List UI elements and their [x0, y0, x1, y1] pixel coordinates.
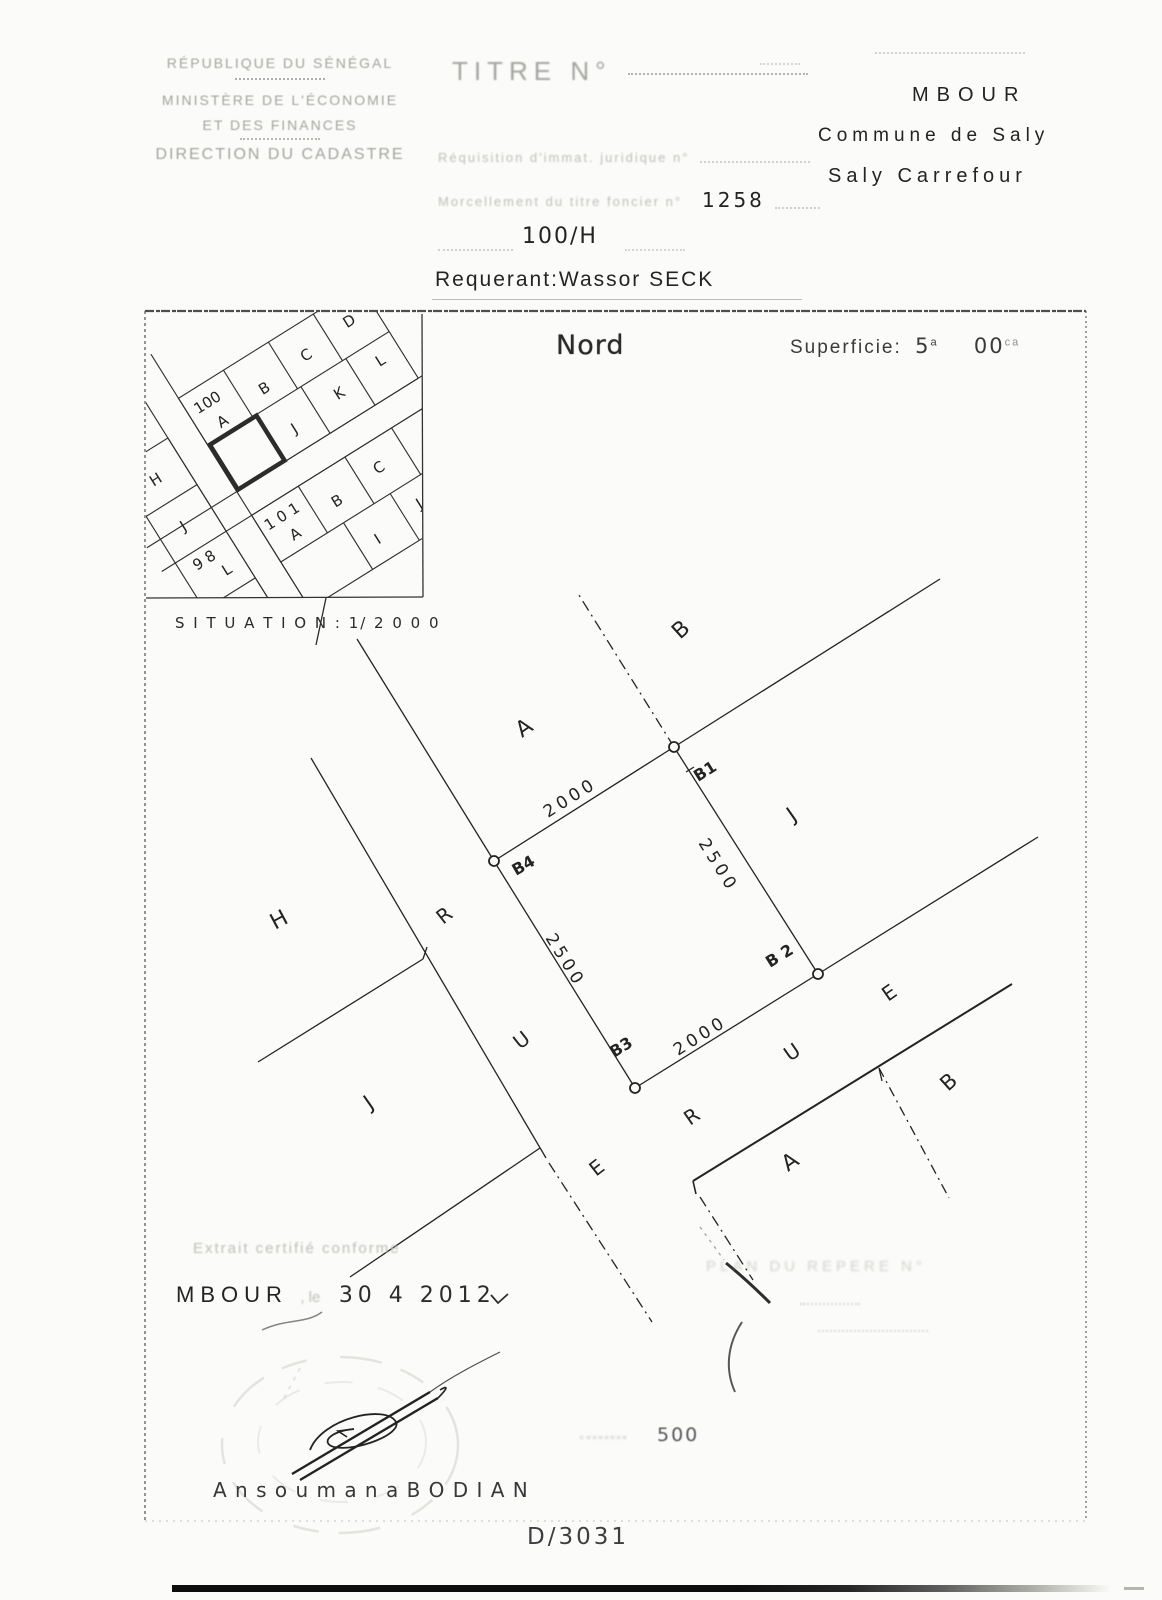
inset-parcel-h98: H: [146, 469, 165, 490]
footer-le: , le: [300, 1289, 320, 1306]
street-bottom-letter-r: R: [679, 1102, 704, 1130]
faint-mark-1: [800, 1303, 860, 1305]
corner-label-b3: B3: [606, 1033, 636, 1061]
inset-parcel-d100: D: [340, 310, 359, 331]
dimension-bottom: 2000: [670, 1012, 731, 1060]
corner-label-b4: B4: [509, 851, 539, 879]
signer-name: A n s o u m a n a B O D I A N: [213, 1478, 529, 1502]
inset-parcel-c101: C: [370, 457, 388, 478]
dimension-left: 2500: [541, 930, 589, 991]
parcel-label-h-left: H: [266, 905, 292, 935]
inset-parcel-b101: B: [328, 490, 346, 511]
parcel-label-b-bottom: B: [935, 1068, 962, 1095]
footer-place: MBOUR: [176, 1282, 288, 1307]
street-left-letter-e: E: [584, 1154, 609, 1181]
doc-number: D/3031: [527, 1524, 629, 1550]
inset-parcel-b100: B: [255, 378, 273, 399]
inset-parcel-a100: A: [213, 411, 232, 432]
inset-caption: S I T U A T I O N : 1/ 2 0 0 0: [175, 614, 441, 632]
street-left-letter-r: R: [431, 901, 457, 929]
place-date-line: MBOUR , le 30 4 2012: [176, 1282, 496, 1308]
inset-parcel-i101: I: [371, 530, 384, 548]
inset-parcel-a101: A: [286, 523, 305, 544]
scan-strip: [172, 1585, 1112, 1592]
inset-parcel-l100: L: [372, 350, 389, 370]
faint-mark-2: [818, 1330, 928, 1332]
inset-parcel-j100: J: [287, 420, 301, 438]
stray-marks: [491, 1227, 770, 1392]
faint-plan-note: PLAN DU REPERE N°: [706, 1258, 926, 1275]
parcel-label-j-left: J: [357, 1091, 377, 1115]
scale-smudge: [580, 1436, 626, 1439]
inset-parcel-k100: K: [330, 383, 349, 404]
signature: [262, 1312, 500, 1480]
plan-drawing: 100 A B C D J K L H J 9 8 L K 1 0 1 A B …: [0, 0, 1162, 1600]
inset-parcel-l98: L: [219, 560, 236, 580]
dimension-top: 2000: [540, 774, 601, 822]
parcel-label-a-bottom: A: [777, 1148, 804, 1177]
scan-strip-fragment: [1124, 1587, 1144, 1590]
footer-date: 30 4 2012: [339, 1283, 496, 1308]
corner-label-b1: B1: [690, 757, 720, 785]
dimension-right: 2500: [694, 835, 742, 896]
corner-label-b2: B 2: [762, 940, 797, 971]
parcel-label-a-top: A: [511, 714, 538, 743]
street-bottom-letter-u: U: [779, 1038, 805, 1066]
inset-block-98-number: 9 8: [189, 546, 219, 574]
street-left-letter-u: U: [508, 1026, 534, 1054]
situation-inset: 100 A B C D J K L H J 9 8 L K 1 0 1 A B …: [61, 230, 535, 707]
parcel-label-j-right: J: [780, 803, 800, 827]
inset-parcel-j98: J: [176, 517, 190, 535]
inset-parcel-c100: C: [297, 345, 315, 366]
parcel-diagram: [258, 579, 1038, 1322]
certify-line: Extrait certifié conforme: [193, 1240, 401, 1257]
scale-value: 500: [657, 1424, 699, 1446]
parcel-label-b-top: B: [667, 616, 695, 645]
inset-parcel-j101: J: [412, 495, 426, 513]
street-bottom-letter-e: E: [877, 979, 901, 1006]
parcel-diagram-labels: B1 B 2 B3 B4 2000 2500 2500 2000 A B J H…: [266, 616, 962, 1181]
